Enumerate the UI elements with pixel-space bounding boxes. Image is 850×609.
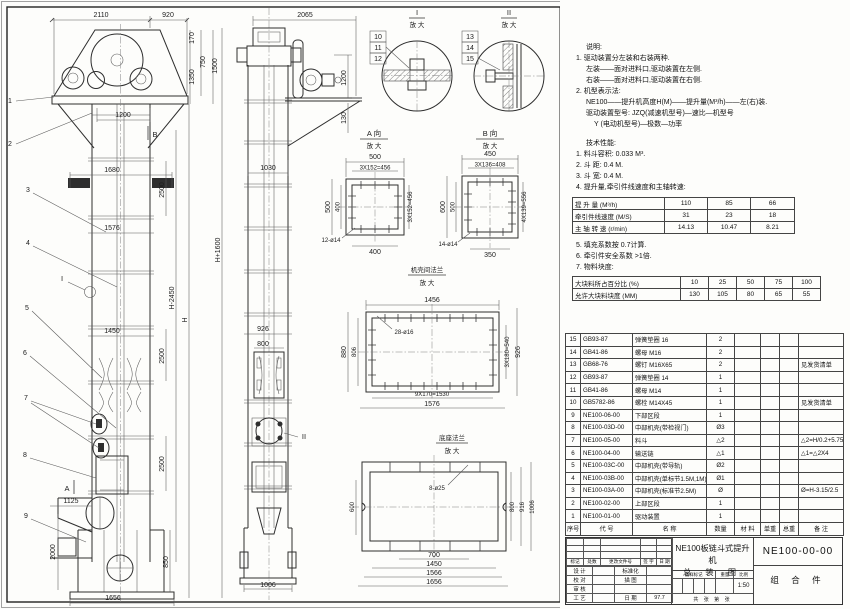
front-dim-1500: 1500 [212, 58, 219, 74]
part-remark [799, 346, 844, 359]
parts-header: 总重 [780, 522, 799, 535]
revision-header: 签 字 [641, 558, 657, 565]
title-block: 标记 处数 更改文件号 签 字 日 期 设 计 标准化 校 对 [565, 537, 843, 605]
leader-3: 3 [26, 187, 30, 194]
part-remark [799, 384, 844, 397]
notes-heading: 说明: [576, 42, 842, 53]
marker-b: B [152, 130, 157, 139]
stamp-header: 重量 [716, 571, 734, 578]
base-dim-left: 600 [350, 501, 356, 512]
flange-title: 机壳间法兰 [411, 265, 444, 274]
detail1-leader-12: 12 [374, 56, 382, 63]
part-name: 螺栓 M14X45 [633, 396, 707, 409]
note-line: 1. 驱动装置分左装和右装两种. [576, 53, 842, 64]
lump-size-row: 允许大块料块度 (MM) 130 105 80 65 55 [573, 289, 821, 301]
part-name: 驱动装置 [633, 510, 707, 523]
leader-1: 1 [8, 98, 12, 105]
parts-header: 序号 [566, 522, 581, 535]
part-qty: 1 [707, 409, 735, 422]
part-unit-weight [761, 334, 780, 347]
signature-value [647, 566, 673, 575]
part-qty: Ø [707, 485, 735, 498]
front-dim-1656: 1656 [105, 595, 121, 602]
front-dim-750: 750 [200, 56, 207, 68]
parts-row: 6 NE100-04-00 输送链 △1 △1=△2X4 [566, 447, 844, 460]
marker-i: I [61, 274, 63, 283]
part-unit-weight [761, 371, 780, 384]
part-no: 5 [566, 459, 581, 472]
part-no: 15 [566, 334, 581, 347]
base-dim-bottom4: 1656 [426, 579, 442, 586]
view-b-dim-left: 600 [440, 201, 447, 213]
part-unit-weight [761, 485, 780, 498]
signature-row: 校 对 描 图 [567, 575, 673, 584]
leader-5: 5 [25, 305, 29, 312]
view-b-dim-top: 450 [484, 151, 496, 158]
part-no: 7 [566, 434, 581, 447]
part-material [735, 510, 761, 523]
detail1-number: I [416, 8, 418, 17]
detail2-leader-15: 15 [466, 56, 474, 63]
part-qty: Ø1 [707, 472, 735, 485]
part-no: 6 [566, 447, 581, 460]
part-no: 13 [566, 359, 581, 372]
part-no: 1 [566, 510, 581, 523]
stamp-box [672, 579, 683, 593]
view-a-dim-left2: 400 [336, 201, 342, 212]
signature-label: 设 计 [567, 566, 593, 575]
detail-view-1: I 放 大 10 11 12 [370, 8, 452, 111]
lump-value: 65 [765, 289, 793, 301]
part-total-weight [780, 384, 799, 397]
base-dim-holes: 8-ø25 [429, 486, 445, 492]
part-remark [799, 510, 844, 523]
front-dim-1680: 1680 [104, 167, 120, 174]
part-total-weight [780, 497, 799, 510]
front-dim-850: 850 [163, 556, 170, 568]
part-no: 14 [566, 346, 581, 359]
base-dim-right1: 800 [510, 501, 516, 512]
part-no: 4 [566, 472, 581, 485]
part-remark: △2=H/0.2+5.75 [799, 434, 844, 447]
base-flange-view: 底座法兰 放 大 8-ø25 600 800 916 1006 700 1450… [350, 433, 536, 586]
view-a-dim-top2: 3X152=456 [360, 166, 392, 172]
base-dim-bottom3: 1566 [426, 570, 442, 577]
part-no: 3 [566, 485, 581, 498]
lump-value: 55 [793, 289, 821, 301]
front-view-geometry [50, 24, 188, 602]
note-line: 6. 牵引件安全系数 >1倍. [576, 251, 842, 262]
flange-dim-right2: 926 [515, 346, 522, 358]
part-code: NE100-05-00 [581, 434, 633, 447]
front-dim-2500-1: 2500 [159, 182, 166, 198]
scale-value: 1:50 [734, 579, 753, 593]
tech-line: 2. 斗 距: 0.4 M. [576, 160, 842, 171]
capacity-label: 牵引件线速度 (M/S) [573, 210, 665, 222]
parts-row: 7 NE100-05-00 料斗 △2 △2=H/0.2+5.75 [566, 434, 844, 447]
part-unit-weight [761, 447, 780, 460]
part-code: NE100-03C-00 [581, 459, 633, 472]
sheet-count: 共 张 第 张 [672, 594, 753, 606]
part-no: 9 [566, 409, 581, 422]
flange-dim-right: 3X180=540 [505, 336, 511, 368]
part-unit-weight [761, 510, 780, 523]
stamp-box [683, 579, 694, 593]
part-name: 料斗 [633, 434, 707, 447]
leader-6: 6 [23, 350, 27, 357]
signature-value: 97.7 [647, 593, 673, 602]
leader-7: 7 [24, 395, 28, 402]
parts-row: 5 NE100-03C-00 中部机壳(带导轨) Ø2 [566, 459, 844, 472]
detail2-scale: 放 大 [502, 20, 517, 29]
part-unit-weight [761, 434, 780, 447]
leader-9: 9 [24, 513, 28, 520]
signature-label: 日 期 [615, 593, 647, 602]
view-a-dim-left: 500 [325, 201, 332, 213]
base-title: 底座法兰 [439, 433, 466, 442]
part-name: 螺母 M14 [633, 384, 707, 397]
parts-row: 12 GB93-87 弹簧垫圈 14 1 [566, 371, 844, 384]
view-b-dim-bottom: 350 [484, 252, 496, 259]
parts-header: 数量 [707, 522, 735, 535]
note-line: 右装——面对进料口,驱动装置在右侧. [576, 75, 842, 86]
note-line: 5. 填充系数按 0.7计算. [576, 240, 842, 251]
part-material [735, 472, 761, 485]
front-dim-1125: 1125 [63, 498, 78, 505]
part-total-weight [780, 472, 799, 485]
side-view-geometry [237, 8, 362, 600]
notes-block-2: 5. 填充系数按 0.7计算. 6. 牵引件安全系数 >1倍. 7. 物料块度: [576, 240, 842, 273]
part-unit-weight [761, 346, 780, 359]
part-qty: 2 [707, 359, 735, 372]
tech-line: 3. 斗 宽: 0.4 M. [576, 171, 842, 182]
drawing-sheet: 2110 920 170 1350 750 1500 H+1600 H H-24… [0, 0, 850, 609]
part-material [735, 359, 761, 372]
signature-label: 标准化 [615, 566, 647, 575]
signature-label: 描 图 [615, 575, 647, 584]
capacity-value: 110 [665, 198, 708, 210]
part-qty: 2 [707, 334, 735, 347]
side-dim-2065: 2065 [297, 12, 313, 19]
front-dim-920: 920 [162, 12, 174, 19]
side-dim-130: 130 [341, 112, 348, 124]
part-remark: 见发货清单 [799, 396, 844, 409]
parts-row: 10 GB5782-86 螺栓 M14X45 1 见发货清单 [566, 396, 844, 409]
tech-line: 1. 料斗容积: 0.033 M³. [576, 149, 842, 160]
part-name: 弹簧垫圈 16 [633, 334, 707, 347]
part-total-weight [780, 459, 799, 472]
revision-table: 标记 处数 更改文件号 签 字 日 期 [566, 538, 673, 566]
part-code: NE100-01-00 [581, 510, 633, 523]
part-remark [799, 422, 844, 435]
tech-spec-block: 技术性能: 1. 料斗容积: 0.033 M³. 2. 斗 距: 0.4 M. … [576, 138, 842, 193]
flange-dim-top: 1456 [424, 297, 440, 304]
tech-heading: 技术性能: [576, 138, 842, 149]
part-code: NE100-03D-00 [581, 422, 633, 435]
part-no: 11 [566, 384, 581, 397]
detail1-leader-10: 10 [374, 34, 382, 41]
part-unit-weight [761, 396, 780, 409]
part-material [735, 447, 761, 460]
part-total-weight [780, 346, 799, 359]
stamp-box [694, 579, 705, 593]
part-total-weight [780, 409, 799, 422]
part-name: 上部区段 [633, 497, 707, 510]
detail1-scale: 放 大 [410, 20, 425, 29]
weight-box [716, 579, 734, 593]
part-unit-weight [761, 459, 780, 472]
flange-dim-left2: 806 [352, 346, 358, 357]
side-view-dimensions: 2065 1200 130 1030 926 800 II 1006 [244, 12, 362, 592]
stamp-header: 比例 [734, 571, 753, 578]
capacity-row: 主 轴 转 速 (r/min) 14.13 10.47 8.21 [573, 222, 795, 234]
part-total-weight [780, 434, 799, 447]
signature-table: 设 计 标准化 校 对 描 图 审 核 工 艺 日 [566, 566, 673, 603]
part-remark [799, 334, 844, 347]
part-name: 中部机壳(标准节2.5M) [633, 485, 707, 498]
title-zone: NE100板链斗式提升机 总 装 图 图样标记 重量 比例 1:50 共 张 第… [672, 538, 754, 604]
capacity-value: 10.47 [708, 222, 751, 234]
part-remark: △1=△2X4 [799, 447, 844, 460]
part-unit-weight [761, 409, 780, 422]
revision-signature-zone: 标记 处数 更改文件号 签 字 日 期 设 计 标准化 校 对 [566, 538, 672, 604]
front-dim-h-minus: H-2450 [169, 286, 176, 309]
flange-dim-left: 880 [341, 346, 348, 358]
part-code: NE100-03B-00 [581, 472, 633, 485]
side-dim-1200: 1200 [341, 70, 348, 86]
signature-label: 工 艺 [567, 593, 593, 602]
part-total-weight [780, 510, 799, 523]
front-dim-2500-3: 2500 [159, 456, 166, 472]
part-code: GB93-87 [581, 371, 633, 384]
leader-2: 2 [8, 141, 12, 148]
lump-value: 25 [709, 277, 737, 289]
lump-value: 50 [737, 277, 765, 289]
parts-row: 2 NE100-02-00 上部区段 1 [566, 497, 844, 510]
signature-label: 审 核 [567, 584, 593, 593]
stamp-box [705, 579, 717, 593]
part-remark [799, 371, 844, 384]
side-dim-1006: 1006 [260, 582, 276, 589]
part-qty: 1 [707, 510, 735, 523]
lump-size-row: 大块料所占百分比 (%) 10 25 50 75 100 [573, 277, 821, 289]
part-total-weight [780, 334, 799, 347]
part-remark [799, 459, 844, 472]
capacity-row: 牵引件线速度 (M/S) 31 23 18 [573, 210, 795, 222]
part-material [735, 384, 761, 397]
signature-label [615, 584, 647, 593]
part-qty: △1 [707, 447, 735, 460]
part-code: GB93-87 [581, 334, 633, 347]
parts-row: 3 NE100-03A-00 中部机壳(标准节2.5M) Ø Ø=H-3.15/… [566, 485, 844, 498]
lump-label: 允许大块料块度 (MM) [573, 289, 681, 301]
view-b-dim-holes: 14-ø14 [438, 242, 458, 248]
flange-view: 机壳间法兰 放 大 1456 28-ø16 880 806 3X180=540 … [341, 265, 522, 408]
front-view-dimensions: 2110 920 170 1350 750 1500 H+1600 H H-24… [8, 12, 222, 606]
capacity-label: 主 轴 转 速 (r/min) [573, 222, 665, 234]
view-a-title: A 向 [367, 128, 381, 138]
right-panel: 说明: 1. 驱动装置分左装和右装两种. 左装——面对进料口,驱动装置在左侧. … [560, 7, 843, 602]
part-no: 2 [566, 497, 581, 510]
part-code: GB41-86 [581, 346, 633, 359]
drawing-number-zone: NE100-00-00 组 合 件 [754, 538, 842, 604]
part-name: 中部机壳(带导轨) [633, 459, 707, 472]
lump-label: 大块料所占百分比 (%) [573, 277, 681, 289]
note-line: 驱动装置型号: JZQ(减速机型号)—速比—机型号 [576, 108, 842, 119]
drawing-number: NE100-00-00 [754, 538, 842, 566]
part-total-weight [780, 447, 799, 460]
capacity-value: 23 [708, 210, 751, 222]
lump-size-table: 大块料所占百分比 (%) 10 25 50 75 100 允许大块料块度 (MM… [572, 276, 821, 301]
parts-row: 9 NE100-06-00 下部区段 1 [566, 409, 844, 422]
note-line: NE100——提升机高度H(M)——提升量(M³/h)——左(右)装. [576, 97, 842, 108]
part-code: NE100-02-00 [581, 497, 633, 510]
revision-empty-row [567, 552, 673, 559]
part-code: GB68-76 [581, 359, 633, 372]
part-material [735, 459, 761, 472]
revision-header-row: 标记 处数 更改文件号 签 字 日 期 [567, 558, 673, 565]
capacity-table: 提 升 量 (M³/h) 110 85 66 牵引件线速度 (M/S) 31 2… [572, 197, 795, 234]
part-name: 弹簧垫圈 14 [633, 371, 707, 384]
part-code: NE100-03A-00 [581, 485, 633, 498]
note-line: 7. 物料块度: [576, 262, 842, 273]
signature-value [593, 593, 615, 602]
parts-list-table: 15 GB93-87 弹簧垫圈 16 2 14 GB41-86 螺母 M16 2… [565, 333, 844, 536]
detail2-leader-14: 14 [466, 45, 474, 52]
detail2-leader-13: 13 [466, 34, 474, 41]
stamp-header: 图样标记 [672, 571, 716, 578]
part-remark: Ø=H-3.15/2.5 [799, 485, 844, 498]
part-material [735, 434, 761, 447]
view-b-dim-right: 4X139=556 [522, 191, 528, 223]
part-name: 中部机壳(单标节1.5M,1M) [633, 472, 707, 485]
part-code: NE100-06-00 [581, 409, 633, 422]
lump-value: 75 [765, 277, 793, 289]
view-a-dim-right: 3X152=456 [408, 191, 414, 223]
base-dim-right2: 916 [520, 501, 526, 512]
part-qty: 1 [707, 497, 735, 510]
part-remark [799, 472, 844, 485]
part-remark [799, 409, 844, 422]
part-material [735, 485, 761, 498]
parts-row: 15 GB93-87 弹簧垫圈 16 2 [566, 334, 844, 347]
note-line: 左装——面对进料口,驱动装置在左侧. [576, 64, 842, 75]
part-unit-weight [761, 422, 780, 435]
lump-value: 10 [681, 277, 709, 289]
revision-header: 更改文件号 [601, 558, 641, 565]
front-dim-1350: 1350 [189, 69, 196, 85]
part-qty: △2 [707, 434, 735, 447]
view-b-scale: 放 大 [483, 141, 498, 150]
lump-value: 105 [709, 289, 737, 301]
view-b: B 向 放 大 450 3X136=408 600 500 4X139=556 … [438, 128, 528, 259]
signature-label: 校 对 [567, 575, 593, 584]
signature-value [593, 566, 615, 575]
capacity-value: 66 [751, 198, 795, 210]
view-b-title: B 向 [483, 128, 498, 138]
revision-header: 日 期 [657, 558, 673, 565]
detail2-number: II [507, 8, 511, 17]
part-code: GB41-86 [581, 384, 633, 397]
detail-view-2: II 放 大 13 14 15 [462, 8, 544, 111]
parts-header: 代 号 [581, 522, 633, 535]
revision-header: 处数 [584, 558, 601, 565]
tech-line: 4. 提升量,牵引件线速度和主轴转速: [576, 182, 842, 193]
signature-row: 工 艺 日 期 97.7 [567, 593, 673, 602]
part-qty: 1 [707, 371, 735, 384]
front-dim-2500-2: 2500 [159, 348, 166, 364]
flange-dim-bottom2: 1576 [424, 401, 440, 408]
parts-header: 备 注 [799, 522, 844, 535]
part-name: 下部区段 [633, 409, 707, 422]
parts-row: 14 GB41-86 螺母 M16 2 [566, 346, 844, 359]
capacity-label: 提 升 量 (M³/h) [573, 198, 665, 210]
part-unit-weight [761, 497, 780, 510]
part-total-weight [780, 371, 799, 384]
capacity-value: 14.13 [665, 222, 708, 234]
part-qty: 1 [707, 384, 735, 397]
part-no: 10 [566, 396, 581, 409]
parts-header-row: 序号 代 号 名 称 数量 材 料 单重 总重 备 注 [566, 522, 844, 535]
drawing-title: NE100板链斗式提升机 总 装 图 [672, 538, 753, 571]
flange-scale: 放 大 [420, 278, 435, 287]
view-b-dim-left2: 500 [451, 201, 457, 212]
lump-value: 130 [681, 289, 709, 301]
front-dim-2000: 2000 [50, 544, 57, 560]
parts-row: 8 NE100-03D-00 中部机壳(带检视门) Ø3 [566, 422, 844, 435]
base-dim-right3: 1006 [530, 500, 536, 514]
front-dim-2110: 2110 [93, 12, 108, 19]
side-dim-1030: 1030 [260, 165, 276, 172]
parts-header: 名 称 [633, 522, 707, 535]
base-scale: 放 大 [445, 446, 460, 455]
parts-row: 11 GB41-86 螺母 M14 1 [566, 384, 844, 397]
part-code: NE100-04-00 [581, 447, 633, 460]
view-a-dim-holes: 12-ø14 [321, 238, 341, 244]
part-material [735, 334, 761, 347]
signature-row: 审 核 [567, 584, 673, 593]
stamp-header-row: 图样标记 重量 比例 [672, 571, 753, 579]
note-line: Y (电动机型号)—极数—功率 [576, 119, 842, 130]
flange-dim-bottom: 9X170=1530 [415, 392, 450, 398]
part-no: 12 [566, 371, 581, 384]
part-qty: Ø2 [707, 459, 735, 472]
part-material [735, 371, 761, 384]
front-dim-h-plus: H+1600 [215, 238, 222, 263]
revision-empty-row [567, 539, 673, 546]
capacity-row: 提 升 量 (M³/h) 110 85 66 [573, 198, 795, 210]
parts-header: 材 料 [735, 522, 761, 535]
part-type: 组 合 件 [754, 566, 842, 586]
part-unit-weight [761, 472, 780, 485]
front-dim-1576: 1576 [104, 225, 120, 232]
signature-value [593, 575, 615, 584]
lump-value: 100 [793, 277, 821, 289]
part-unit-weight [761, 384, 780, 397]
marker-a: A [64, 484, 69, 493]
drawing-area: 2110 920 170 1350 750 1500 H+1600 H H-24… [0, 0, 560, 609]
stamp-boxes-row: 1:50 [672, 579, 753, 594]
parts-row: 13 GB68-76 螺钉 M16X65 2 见发货清单 [566, 359, 844, 372]
drawing-title-line1: NE100板链斗式提升机 [672, 542, 753, 566]
capacity-value: 31 [665, 210, 708, 222]
view-a-dim-bottom: 400 [369, 249, 381, 256]
parts-header: 单重 [761, 522, 780, 535]
part-total-weight [780, 485, 799, 498]
view-a: A 向 放 大 500 3X152=456 500 400 3X152=456 … [321, 128, 414, 256]
capacity-value: 85 [708, 198, 751, 210]
part-remark: 见发货清单 [799, 359, 844, 372]
